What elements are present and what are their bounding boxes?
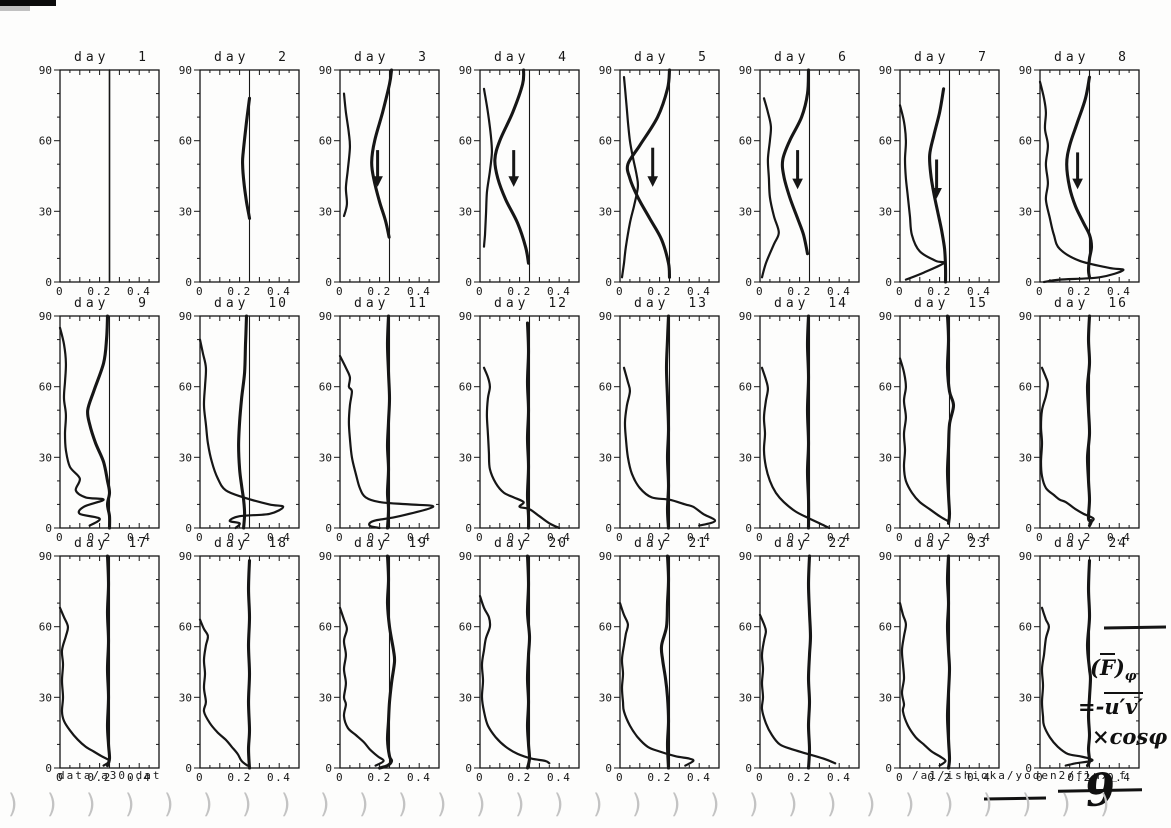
svg-text:90: 90	[739, 64, 752, 77]
panel-title: day6	[774, 50, 848, 65]
svg-text:0.2: 0.2	[787, 771, 811, 784]
svg-text:12: 12	[548, 296, 568, 311]
svg-text:day: day	[494, 296, 529, 311]
svg-text:90: 90	[319, 64, 332, 77]
panel-day-22: day22030609000.20.4	[730, 526, 880, 784]
downward-arrow-icon	[1073, 152, 1082, 188]
panel-day-5: day5030609000.20.4	[590, 40, 740, 298]
panel-day-13: day13030609000.20.4	[590, 286, 740, 544]
svg-text:30: 30	[459, 205, 472, 218]
binding-mark: )	[398, 789, 433, 820]
panel-title: day22	[774, 536, 848, 551]
panel-svg: day1030609000.20.4	[30, 40, 180, 298]
svg-text:60: 60	[39, 135, 52, 148]
axis-ticks	[754, 556, 859, 768]
panel-day-3: day3030609000.20.4	[310, 40, 460, 298]
svg-text:0.2: 0.2	[507, 771, 531, 784]
svg-text:0: 0	[325, 762, 332, 775]
binding-mark: )	[515, 789, 550, 820]
flux-profile-curve	[249, 561, 250, 768]
binding-mark: )	[320, 789, 355, 820]
svg-text:24: 24	[1108, 536, 1128, 551]
panel-title: day3	[354, 50, 428, 65]
data-file-label: data/a30.dat	[58, 769, 161, 782]
panel-day-10: day10030609000.20.4	[170, 286, 320, 544]
svg-text:90: 90	[1019, 64, 1032, 77]
svg-text:14: 14	[828, 296, 848, 311]
svg-text:day: day	[774, 536, 809, 551]
panel-title: day8	[1054, 50, 1128, 65]
binding-mark: )	[944, 789, 979, 820]
axis-ticks	[1034, 316, 1139, 528]
svg-text:30: 30	[319, 691, 332, 704]
svg-text:30: 30	[879, 205, 892, 218]
svg-text:30: 30	[39, 691, 52, 704]
svg-text:30: 30	[879, 691, 892, 704]
svg-text:90: 90	[39, 310, 52, 323]
svg-text:1: 1	[138, 50, 148, 65]
svg-text:90: 90	[39, 550, 52, 563]
svg-text:30: 30	[319, 205, 332, 218]
binding-mark: )	[476, 789, 511, 820]
panel-day-8: day8030609000.20.4	[1010, 40, 1160, 298]
panel-title: day5	[634, 50, 708, 65]
svg-text:30: 30	[179, 205, 192, 218]
svg-text:90: 90	[459, 550, 472, 563]
flux-profile-curve	[661, 556, 668, 768]
svg-text:90: 90	[739, 550, 752, 563]
svg-text:17: 17	[128, 536, 148, 551]
svg-text:5: 5	[698, 50, 708, 65]
svg-text:60: 60	[459, 621, 472, 634]
svg-text:30: 30	[739, 451, 752, 464]
svg-text:day: day	[494, 536, 529, 551]
panel-title: day15	[914, 296, 988, 311]
panel-svg: day4030609000.20.4	[450, 40, 600, 298]
svg-text:11: 11	[408, 296, 428, 311]
svg-text:3: 3	[418, 50, 428, 65]
panel-day-11: day11030609000.20.4	[310, 286, 460, 544]
binding-mark: )	[1061, 789, 1096, 820]
svg-text:16: 16	[1108, 296, 1128, 311]
svg-text:90: 90	[879, 64, 892, 77]
svg-text:day: day	[74, 536, 109, 551]
panel-title: day24	[1054, 536, 1128, 551]
binding-mark: )	[593, 789, 628, 820]
flux-profile-curve	[243, 98, 250, 218]
svg-text:day: day	[774, 50, 809, 65]
panel-svg: day18030609000.20.4	[170, 526, 320, 784]
panel-title: day18	[214, 536, 288, 551]
binding-mark: )	[242, 789, 277, 820]
flux-profile-curve	[948, 556, 950, 768]
axis-ticks	[54, 70, 159, 282]
svg-text:90: 90	[599, 310, 612, 323]
svg-text:6: 6	[838, 50, 848, 65]
secondary-curve	[762, 368, 829, 528]
svg-text:0: 0	[476, 771, 484, 784]
svg-text:30: 30	[319, 451, 332, 464]
panel-title: day11	[354, 296, 428, 311]
binding-mark: )	[983, 789, 1018, 820]
panel-title: day20	[494, 536, 568, 551]
svg-text:90: 90	[459, 310, 472, 323]
svg-text:60: 60	[39, 621, 52, 634]
panel-day-23: day23030609000.20.4	[870, 526, 1020, 784]
panel-svg: day23030609000.20.4	[870, 526, 1020, 784]
svg-text:7: 7	[978, 50, 988, 65]
svg-text:30: 30	[459, 451, 472, 464]
binding-mark: )	[710, 789, 745, 820]
downward-arrow-icon	[373, 150, 382, 186]
secondary-curve	[200, 620, 248, 766]
svg-text:60: 60	[1019, 381, 1032, 394]
svg-text:21: 21	[688, 536, 708, 551]
panel-svg: day8030609000.20.4	[1010, 40, 1160, 298]
svg-text:60: 60	[599, 621, 612, 634]
svg-text:60: 60	[39, 381, 52, 394]
svg-text:30: 30	[599, 691, 612, 704]
axis-tick-labels: 030609000.20.4	[459, 310, 572, 544]
svg-text:60: 60	[879, 135, 892, 148]
svg-text:30: 30	[1019, 691, 1032, 704]
svg-text:0.2: 0.2	[647, 771, 671, 784]
flux-profile-curve	[495, 70, 529, 263]
panel-day-14: day14030609000.20.4	[730, 286, 880, 544]
flux-profile-curve	[667, 316, 669, 528]
binding-mark: )	[86, 789, 121, 820]
panel-title: day23	[914, 536, 988, 551]
svg-text:60: 60	[459, 135, 472, 148]
secondary-curve	[484, 89, 492, 247]
svg-text:day: day	[914, 296, 949, 311]
handwritten-eq-flux: (F)φ	[1090, 653, 1170, 692]
panel-day-9: day9030609000.20.4	[30, 286, 180, 544]
svg-text:60: 60	[739, 135, 752, 148]
binding-mark: )	[437, 789, 472, 820]
downward-arrow-icon	[793, 150, 802, 188]
svg-text:13: 13	[688, 296, 708, 311]
panel-title: day1	[74, 50, 148, 65]
svg-text:60: 60	[879, 621, 892, 634]
panel-title: day13	[634, 296, 708, 311]
downward-arrow-icon	[509, 150, 518, 186]
svg-text:90: 90	[39, 64, 52, 77]
secondary-curve	[480, 596, 549, 763]
svg-text:20: 20	[548, 536, 568, 551]
svg-text:0: 0	[605, 762, 612, 775]
svg-text:day: day	[214, 536, 249, 551]
secondary-curve	[620, 603, 693, 766]
binding-mark: )	[359, 789, 394, 820]
svg-text:9: 9	[138, 296, 148, 311]
svg-text:day: day	[494, 50, 529, 65]
handwritten-eq-cos: ×cosφ	[1092, 722, 1170, 752]
svg-text:30: 30	[1019, 451, 1032, 464]
svg-text:day: day	[74, 296, 109, 311]
svg-text:0: 0	[45, 762, 52, 775]
svg-text:90: 90	[1019, 310, 1032, 323]
panel-title: day19	[354, 536, 428, 551]
svg-text:4: 4	[558, 50, 568, 65]
binding-shadow-marks: )))))))))))))))))))))))))))))	[6, 789, 1171, 825]
handwritten-overbar-line	[1104, 625, 1166, 629]
panel-svg: day19030609000.20.4	[310, 526, 460, 784]
binding-mark: )	[905, 789, 940, 820]
svg-text:0: 0	[196, 771, 204, 784]
panel-svg: day17030609000.20.4	[30, 526, 180, 784]
panel-day-21: day21030609000.20.4	[590, 526, 740, 784]
svg-text:day: day	[634, 50, 669, 65]
svg-text:60: 60	[879, 381, 892, 394]
axis-tick-labels: 030609000.20.4	[739, 310, 852, 544]
axis-ticks	[1034, 70, 1139, 282]
panel-svg: day20030609000.20.4	[450, 526, 600, 784]
axis-ticks	[894, 70, 999, 282]
svg-text:0: 0	[896, 771, 904, 784]
panel-title: day17	[74, 536, 148, 551]
svg-text:19: 19	[408, 536, 428, 551]
svg-text:60: 60	[179, 381, 192, 394]
axis-tick-labels: 030609000.20.4	[39, 550, 152, 784]
svg-text:day: day	[354, 50, 389, 65]
panel-day-4: day4030609000.20.4	[450, 40, 600, 298]
panel-svg: day7030609000.20.4	[870, 40, 1020, 298]
svg-text:60: 60	[179, 621, 192, 634]
svg-text:day: day	[214, 296, 249, 311]
panel-title: day12	[494, 296, 568, 311]
flux-profile-curve	[88, 316, 110, 528]
svg-text:day: day	[1054, 50, 1089, 65]
axis-tick-labels: 030609000.20.4	[739, 550, 852, 784]
svg-text:60: 60	[1019, 135, 1032, 148]
panel-title: day4	[494, 50, 568, 65]
panel-title: day10	[214, 296, 288, 311]
axis-ticks	[194, 70, 299, 282]
panel-svg: day3030609000.20.4	[310, 40, 460, 298]
panel-svg: day10030609000.20.4	[170, 286, 320, 544]
panel-day-20: day20030609000.20.4	[450, 526, 600, 784]
secondary-curve	[1041, 368, 1094, 524]
svg-text:30: 30	[39, 451, 52, 464]
svg-text:18: 18	[268, 536, 288, 551]
panel-title: day2	[214, 50, 288, 65]
secondary-curve	[340, 608, 384, 766]
svg-text:0.4: 0.4	[407, 771, 431, 784]
axis-tick-labels: 030609000.20.4	[39, 64, 152, 298]
binding-mark: )	[125, 789, 160, 820]
svg-text:90: 90	[879, 310, 892, 323]
svg-text:30: 30	[739, 205, 752, 218]
svg-text:90: 90	[879, 550, 892, 563]
flux-profile-curve	[808, 316, 809, 528]
panel-svg: day6030609000.20.4	[730, 40, 880, 298]
secondary-curve	[762, 98, 779, 277]
panel-title: day16	[1054, 296, 1128, 311]
binding-mark: )	[1022, 789, 1057, 820]
binding-mark: )	[203, 789, 238, 820]
svg-text:day: day	[354, 296, 389, 311]
svg-text:90: 90	[179, 64, 192, 77]
panel-title: day7	[914, 50, 988, 65]
svg-text:0.4: 0.4	[687, 771, 711, 784]
svg-text:60: 60	[319, 135, 332, 148]
downward-arrow-icon	[932, 160, 941, 198]
svg-text:90: 90	[599, 64, 612, 77]
svg-text:10: 10	[268, 296, 288, 311]
flux-profile-curve	[809, 556, 811, 768]
axis-tick-labels: 030609000.20.4	[879, 310, 992, 544]
axis-ticks	[194, 556, 299, 768]
svg-text:60: 60	[599, 135, 612, 148]
handwritten-annotation: (F)φ =-u′v′ ×cosφ	[1078, 626, 1170, 752]
binding-mark: )	[1100, 789, 1135, 820]
panel-day-1: day1030609000.20.4	[30, 40, 180, 298]
svg-text:90: 90	[179, 310, 192, 323]
svg-text:23: 23	[968, 536, 988, 551]
svg-text:30: 30	[179, 691, 192, 704]
handwritten-eq-uv: =-u′v′	[1078, 692, 1170, 722]
svg-text:90: 90	[319, 310, 332, 323]
svg-text:0: 0	[336, 771, 344, 784]
secondary-curve	[344, 94, 350, 216]
axis-tick-labels: 030609000.20.4	[599, 310, 712, 544]
svg-text:day: day	[634, 296, 669, 311]
binding-mark: )	[671, 789, 706, 820]
flux-profile-curve	[528, 323, 529, 528]
panel-svg: day14030609000.20.4	[730, 286, 880, 544]
binding-mark: )	[281, 789, 316, 820]
axis-tick-labels: 030609000.20.4	[459, 550, 572, 784]
flux-profile-curve	[627, 70, 669, 277]
svg-text:0.4: 0.4	[267, 771, 291, 784]
svg-text:22: 22	[828, 536, 848, 551]
svg-text:0.2: 0.2	[367, 771, 391, 784]
svg-text:90: 90	[459, 64, 472, 77]
svg-text:60: 60	[179, 135, 192, 148]
svg-text:0: 0	[465, 762, 472, 775]
flux-profile-curve	[372, 70, 392, 237]
svg-text:90: 90	[319, 550, 332, 563]
binding-mark: )	[47, 789, 82, 820]
binding-mark: )	[164, 789, 199, 820]
svg-text:0: 0	[885, 762, 892, 775]
axis-tick-labels: 030609000.20.4	[179, 310, 292, 544]
svg-text:60: 60	[319, 381, 332, 394]
svg-text:90: 90	[179, 550, 192, 563]
svg-text:day: day	[1054, 536, 1089, 551]
secondary-curve	[60, 328, 104, 526]
panel-svg: day11030609000.20.4	[310, 286, 460, 544]
secondary-curve	[200, 340, 283, 528]
panel-day-7: day7030609000.20.4	[870, 40, 1020, 298]
panel-title: day9	[74, 296, 148, 311]
svg-text:60: 60	[319, 621, 332, 634]
svg-text:30: 30	[599, 205, 612, 218]
svg-text:day: day	[774, 296, 809, 311]
scanned-plot-page: day1030609000.20.4day2030609000.20.4day3…	[0, 0, 1171, 828]
binding-mark: )	[8, 789, 43, 820]
svg-text:day: day	[914, 536, 949, 551]
axis-tick-labels: 030609000.20.4	[879, 64, 992, 298]
panel-day-17: day17030609000.20.4	[30, 526, 180, 784]
panel-day-2: day2030609000.20.4	[170, 40, 320, 298]
svg-text:60: 60	[1019, 621, 1032, 634]
svg-text:60: 60	[739, 381, 752, 394]
svg-text:8: 8	[1118, 50, 1128, 65]
svg-text:60: 60	[599, 381, 612, 394]
svg-text:day: day	[1054, 296, 1089, 311]
binding-mark: )	[866, 789, 901, 820]
panel-day-12: day12030609000.20.4	[450, 286, 600, 544]
svg-text:30: 30	[599, 451, 612, 464]
axis-tick-labels: 030609000.20.4	[179, 64, 292, 298]
panel-svg: day9030609000.20.4	[30, 286, 180, 544]
panel-svg: day15030609000.20.4	[870, 286, 1020, 544]
svg-text:0: 0	[616, 771, 624, 784]
axis-ticks	[894, 316, 999, 528]
svg-text:0: 0	[745, 762, 752, 775]
axis-tick-labels: 030609000.20.4	[319, 310, 432, 544]
svg-text:60: 60	[739, 621, 752, 634]
svg-text:day: day	[354, 536, 389, 551]
svg-text:0: 0	[756, 771, 764, 784]
svg-text:90: 90	[739, 310, 752, 323]
panel-day-6: day6030609000.20.4	[730, 40, 880, 298]
panel-svg: day22030609000.20.4	[730, 526, 880, 784]
panel-grid: day1030609000.20.4day2030609000.20.4day3…	[0, 0, 1171, 828]
svg-text:2: 2	[278, 50, 288, 65]
panel-day-16: day16030609000.20.4	[1010, 286, 1160, 544]
svg-text:0.4: 0.4	[547, 771, 571, 784]
panel-svg: day21030609000.20.4	[590, 526, 740, 784]
secondary-curve	[760, 615, 835, 763]
svg-text:60: 60	[459, 381, 472, 394]
panel-svg: day12030609000.20.4	[450, 286, 600, 544]
panel-title: day21	[634, 536, 708, 551]
secondary-curve	[900, 603, 946, 766]
panel-svg: day13030609000.20.4	[590, 286, 740, 544]
svg-text:30: 30	[879, 451, 892, 464]
svg-text:90: 90	[1019, 550, 1032, 563]
axis-tick-labels: 030609000.20.4	[179, 550, 292, 784]
svg-text:day: day	[214, 50, 249, 65]
svg-text:15: 15	[968, 296, 988, 311]
panel-day-18: day18030609000.20.4	[170, 526, 320, 784]
flux-profile-curve	[108, 556, 110, 766]
svg-text:day: day	[74, 50, 109, 65]
secondary-curve	[60, 608, 110, 766]
binding-mark: )	[788, 789, 823, 820]
binding-mark: )	[554, 789, 589, 820]
downward-arrow-icon	[648, 148, 657, 186]
flux-profile-curve	[1087, 316, 1091, 526]
svg-text:30: 30	[179, 451, 192, 464]
panel-day-19: day19030609000.20.4	[310, 526, 460, 784]
binding-mark: )	[827, 789, 862, 820]
panel-svg: day16030609000.20.4	[1010, 286, 1160, 544]
svg-text:30: 30	[1019, 205, 1032, 218]
flux-profile-curve	[380, 556, 395, 768]
svg-text:0: 0	[185, 762, 192, 775]
panel-svg: day5030609000.20.4	[590, 40, 740, 298]
flux-profile-curve	[527, 556, 529, 768]
svg-text:30: 30	[39, 205, 52, 218]
secondary-curve	[484, 368, 559, 528]
svg-text:90: 90	[599, 550, 612, 563]
svg-text:0.2: 0.2	[227, 771, 251, 784]
axis-tick-labels: 030609000.20.4	[319, 550, 432, 784]
